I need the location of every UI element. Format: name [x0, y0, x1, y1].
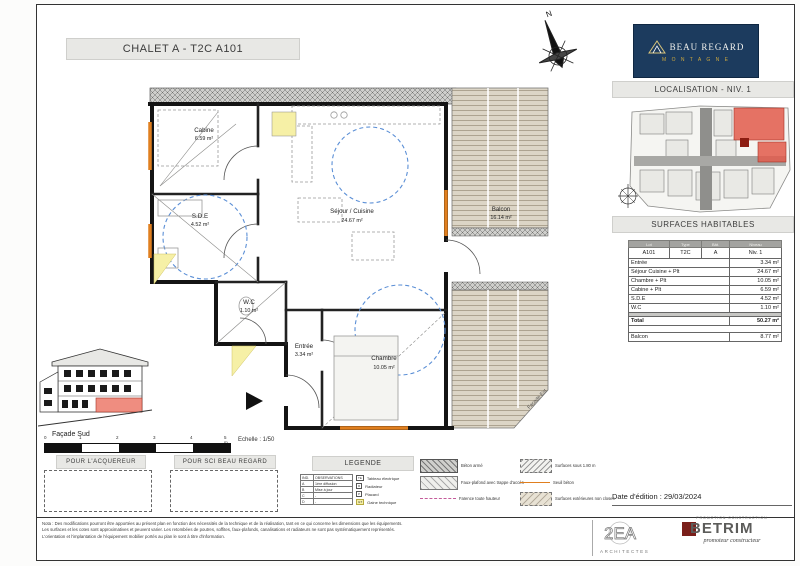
area-chambre: 10.05 m² [373, 365, 394, 371]
acquereur-header: POUR L'ACQUEREUR [56, 455, 146, 469]
swatch-faience [420, 498, 456, 499]
revision-table: IND.OBSERVATIONS A1ère diffusion BMise à… [300, 474, 353, 505]
swatch-fauxplafond [420, 476, 458, 490]
sci-header: POUR SCI BEAU REGARD [174, 455, 276, 469]
brand-name: BEAU REGARD [670, 42, 745, 52]
footer-divider [592, 520, 593, 556]
label-entree: Entrée [295, 343, 314, 350]
swatch-exterieur [520, 492, 552, 506]
balcony-divider-1 [452, 228, 548, 236]
acquereur-signature-box [44, 470, 152, 512]
table-row: S.D.E4.52 m² [629, 295, 782, 304]
balcony-divider-2 [452, 282, 548, 290]
scale-text: Echelle : 1/50 [238, 437, 274, 443]
label-sde: S.D.E [192, 213, 208, 220]
plan-sheet: CHALET A - T2C A101 N [0, 0, 800, 566]
title-box: CHALET A - T2C A101 [66, 38, 300, 60]
table-row: W.C1.10 m² [629, 304, 782, 313]
window-markers [150, 122, 446, 428]
architect-sub: ARCHITECTES [600, 549, 660, 554]
swatch-seuil [520, 482, 550, 483]
exterior-wall-hatch [150, 88, 456, 104]
partitions [152, 104, 446, 428]
floor-plan: Cabine 6.59 m² S.D.E 4.52 m² W.C 1.10 m²… [135, 80, 575, 455]
table-row: Cabine + Plt6.59 m² [629, 286, 782, 295]
table-row: Chambre + Plt10.05 m² [629, 277, 782, 286]
area-sde: 4.52 m² [191, 222, 209, 228]
area-entree: 3.34 m² [295, 352, 313, 358]
mountain-icon [648, 40, 666, 54]
brand-logo: BEAU REGARD M O N T A G N E [633, 24, 759, 78]
area-sejour: 24.67 m² [341, 218, 362, 224]
builder-name: BETRIM [690, 520, 754, 537]
localisation-title: LOCALISATION - NIV. 1 [655, 85, 752, 94]
walls [150, 104, 452, 428]
swatch-beton [420, 459, 458, 473]
surfaces-table: Lot Type Bât. Niveau A101T2C ANiv. 1 Ent… [628, 240, 782, 342]
brand-sub: M O N T A G N E [662, 57, 730, 63]
label-chambre: Chambre [371, 355, 397, 362]
label-cabine: Cabine [194, 127, 214, 134]
localisation-map [610, 99, 794, 215]
label-balcon: Balcon [492, 207, 510, 213]
unit-row: A101T2C ANiv. 1 [629, 248, 782, 259]
legend-swatches-b: Surfaces sous 1.80 m Seuil béton Surface… [520, 457, 670, 506]
page-title: CHALET A - T2C A101 [123, 43, 243, 55]
facade-sud-label: Façade Sud [52, 431, 90, 438]
legend-symbols: TETableau électrique RRadiateur PPlacard… [356, 474, 418, 506]
total-row: Total50.27 m² [629, 317, 782, 326]
builder-logo: PROMOTION CONSTRUCTION BETRIM promoteur … [682, 516, 782, 544]
architect-name: 2EA [604, 524, 637, 543]
facade-unit-highlight [96, 398, 142, 412]
low-ceiling-lines [152, 112, 446, 428]
label-wc: W.C [243, 299, 255, 306]
swatch-sous-180 [520, 459, 552, 473]
surfaces-header: SURFACES HABITABLES [612, 216, 794, 233]
accessibility-circles [163, 127, 445, 375]
area-wc: 1.10 m² [240, 308, 258, 314]
label-sejour: Séjour / Cuisine [330, 208, 374, 215]
localisation-header: LOCALISATION - NIV. 1 [612, 81, 794, 98]
legend-header: LEGENDE [312, 456, 414, 471]
compass-north-label: N [545, 9, 554, 20]
entrance-arrow [246, 392, 263, 410]
table-row: Entrée3.34 m² [629, 259, 782, 268]
disclaimer-text: Nota : Des modifications pourront être a… [42, 521, 587, 540]
table-row: Séjour Cuisine + Plt24.67 m² [629, 268, 782, 277]
surfaces-title: SURFACES HABITABLES [651, 220, 755, 229]
builder-tagline: promoteur constructeur [682, 538, 782, 544]
facade-sud-elevation [38, 340, 158, 432]
area-balcon: 16.14 m² [490, 215, 511, 221]
architect-logo: 2EA ARCHITECTES [600, 521, 660, 554]
sci-signature-box [170, 470, 278, 512]
balcon-row: Balcon8.77 m² [629, 333, 782, 342]
area-cabine: 6.59 m² [195, 136, 213, 142]
